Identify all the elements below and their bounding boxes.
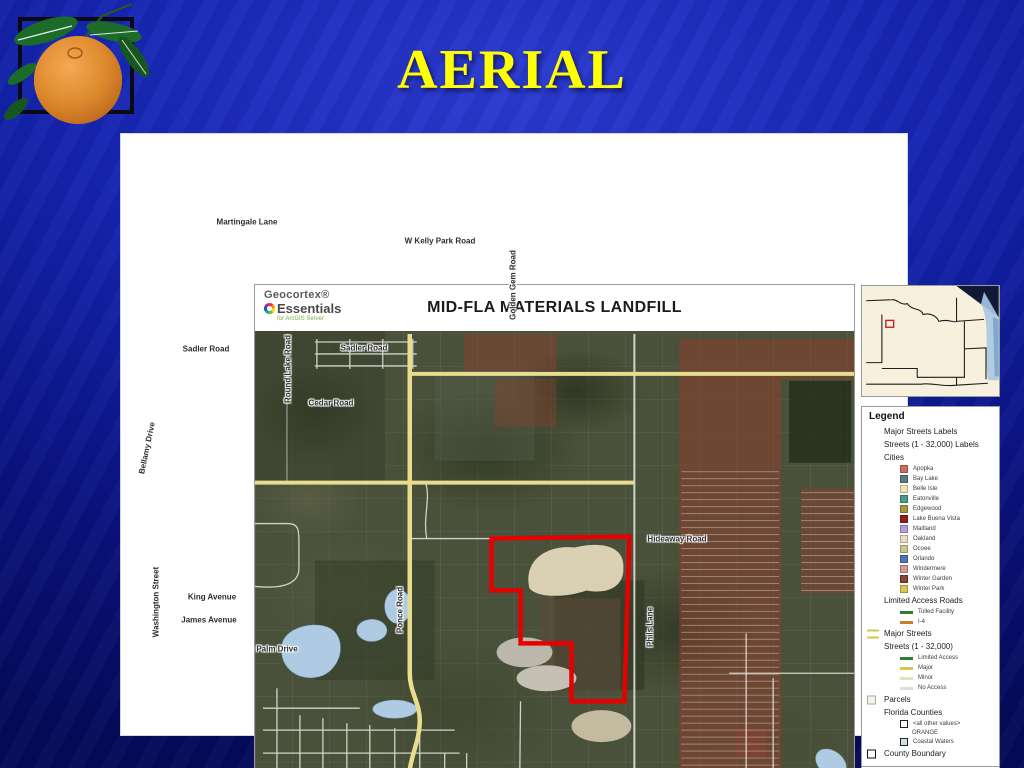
legend-item: No Access bbox=[862, 683, 999, 693]
overview-map[interactable] bbox=[861, 285, 1000, 397]
legend-item: Orlando bbox=[862, 554, 999, 564]
sand-pit bbox=[528, 545, 623, 596]
city-swatch bbox=[900, 555, 908, 563]
legend-rows: Major Streets Labels Streets (1 - 32,000… bbox=[862, 425, 999, 761]
map-header: Geocortex® Essentials for ArcGIS Server … bbox=[254, 284, 855, 332]
legend-item: Winter Garden bbox=[862, 574, 999, 584]
legend-item: Eatonville bbox=[862, 494, 999, 504]
legend-item: Edgewood bbox=[862, 504, 999, 514]
slide-title: AERIAL bbox=[0, 38, 1024, 102]
overlay-zone bbox=[464, 334, 557, 371]
slide-canvas: AERIAL Geocortex® Essentials for ArcGIS … bbox=[0, 0, 1024, 768]
legend-item: Oakland bbox=[862, 534, 999, 544]
map-title: MID-FLA MATERIALS LANDFILL bbox=[255, 299, 854, 317]
legend-item: Winter Park bbox=[862, 584, 999, 594]
legend-item: Apopka bbox=[862, 464, 999, 474]
legend-panel: Legend Major Streets Labels Streets (1 -… bbox=[861, 406, 1000, 768]
legend-group-cities: Cities bbox=[862, 451, 999, 464]
legend-group-major-streets: Major Streets bbox=[862, 627, 999, 640]
city-swatch bbox=[900, 565, 908, 573]
map-document-panel: Geocortex® Essentials for ArcGIS Server … bbox=[120, 133, 908, 736]
legend-title: Legend bbox=[862, 407, 999, 425]
aerial-map-graphics bbox=[255, 331, 854, 768]
road-line-swatch bbox=[900, 667, 913, 670]
double-line-icon bbox=[867, 629, 879, 638]
city-swatch bbox=[900, 545, 908, 553]
legend-item: Major bbox=[862, 663, 999, 673]
road-line-swatch bbox=[900, 657, 913, 660]
legend-item: Major Streets Labels bbox=[862, 425, 999, 438]
legend-item: Tolled Facility bbox=[862, 607, 999, 617]
city-swatch bbox=[900, 515, 908, 523]
city-swatch bbox=[900, 525, 908, 533]
aerial-map-viewport[interactable] bbox=[254, 331, 855, 768]
road-line-swatch bbox=[900, 677, 913, 680]
city-swatch bbox=[900, 475, 908, 483]
legend-item: <all other values> bbox=[862, 719, 999, 729]
legend-item: Limited Access bbox=[862, 653, 999, 663]
legend-item: Windermere bbox=[862, 564, 999, 574]
legend-item-parcels: Parcels bbox=[862, 693, 999, 706]
legend-group-florida-counties: Florida Counties bbox=[862, 706, 999, 719]
county-swatch bbox=[900, 720, 908, 728]
legend-item: I-4 bbox=[862, 617, 999, 627]
parcels-swatch bbox=[867, 695, 876, 704]
city-swatch bbox=[900, 505, 908, 513]
road-line-swatch bbox=[900, 621, 913, 624]
county-boundary-swatch bbox=[867, 749, 876, 758]
city-swatch bbox=[900, 585, 908, 593]
coastal-waters-swatch bbox=[900, 738, 908, 746]
legend-group-streets: Streets (1 - 32,000) bbox=[862, 640, 999, 653]
legend-item: Minor bbox=[862, 673, 999, 683]
legend-item: Belle Isle bbox=[862, 484, 999, 494]
road-line-swatch bbox=[900, 611, 913, 614]
legend-item: Ocoee bbox=[862, 544, 999, 554]
road-line-swatch bbox=[900, 687, 913, 690]
legend-item: Lake Buena Vista bbox=[862, 514, 999, 524]
overview-map-graphics bbox=[862, 286, 999, 396]
legend-item-county-boundary: County Boundary bbox=[862, 747, 999, 760]
city-swatch bbox=[900, 495, 908, 503]
legend-group-limited-access-roads: Limited Access Roads bbox=[862, 594, 999, 607]
city-swatch bbox=[900, 485, 908, 493]
city-swatch bbox=[900, 535, 908, 543]
legend-item: Streets (1 - 32,000) Labels bbox=[862, 438, 999, 451]
legend-item: Bay Lake bbox=[862, 474, 999, 484]
legend-item-water-bodies: Water Bodies bbox=[862, 760, 999, 761]
city-swatch bbox=[900, 465, 908, 473]
legend-item: Coastal Waters bbox=[862, 737, 999, 747]
legend-item: ORANGE bbox=[862, 729, 999, 737]
city-swatch bbox=[900, 575, 908, 583]
legend-item: Maitland bbox=[862, 524, 999, 534]
